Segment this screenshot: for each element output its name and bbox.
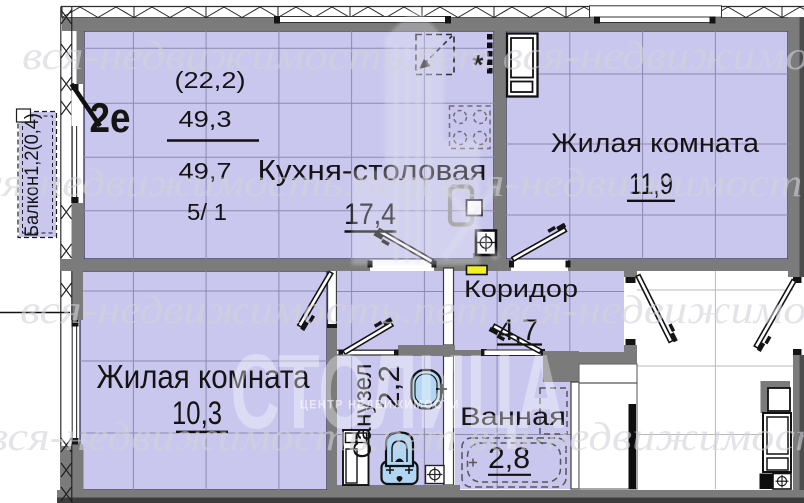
svg-text:вся-недвижимость.пет вся-недви: вся-недвижимость.пет вся-недвижимость.пе… — [0, 160, 804, 205]
svg-text:ЦЕНТР НЕДВИЖИМОСТИ: ЦЕНТР НЕДВИЖИМОСТИ — [300, 398, 460, 412]
svg-text:2е: 2е — [90, 94, 131, 141]
svg-text:вся-недвижимость.пет вся-недви: вся-недвижимость.пет вся-недвижимость.пе… — [22, 33, 804, 78]
svg-text:Жилая комната: Жилая комната — [551, 128, 760, 158]
svg-text:вся-недвижимость.пет вся-недви: вся-недвижимость.пет вся-недвижимость.пе… — [20, 287, 804, 332]
svg-text:49,3: 49,3 — [179, 106, 232, 132]
svg-text:вся-недвижимость.пет вся-недви: вся-недвижимость.пет вся-недвижимость.пе… — [0, 414, 804, 459]
